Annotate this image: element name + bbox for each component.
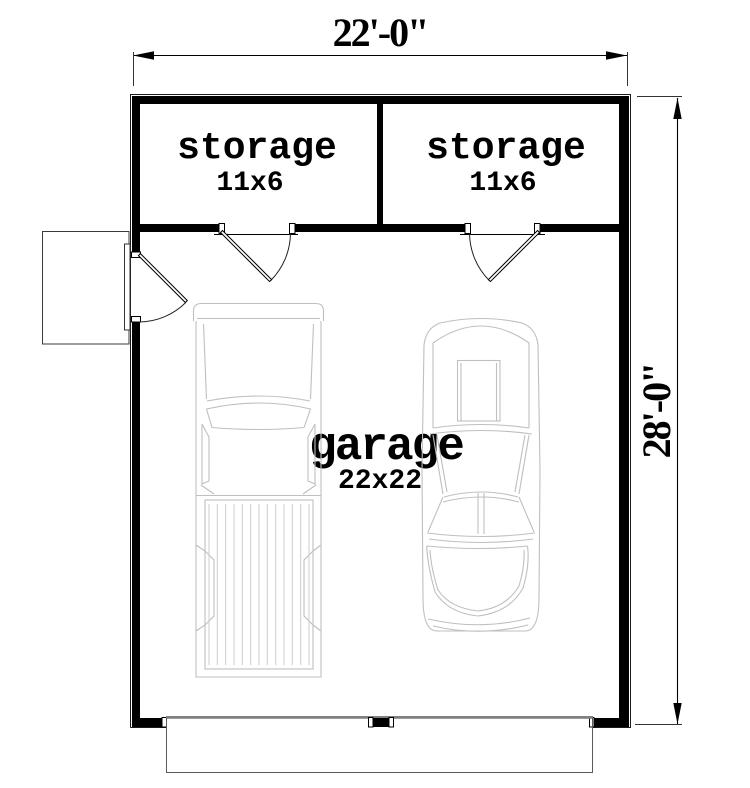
svg-text:11x6: 11x6 [216, 168, 283, 199]
svg-text:22'-0": 22'-0" [333, 10, 428, 55]
svg-text:28'-0": 28'-0" [634, 364, 679, 459]
svg-text:storage: storage [426, 127, 586, 170]
svg-text:22x22: 22x22 [338, 466, 422, 497]
svg-text:storage: storage [177, 127, 337, 170]
svg-text:11x6: 11x6 [469, 168, 536, 199]
